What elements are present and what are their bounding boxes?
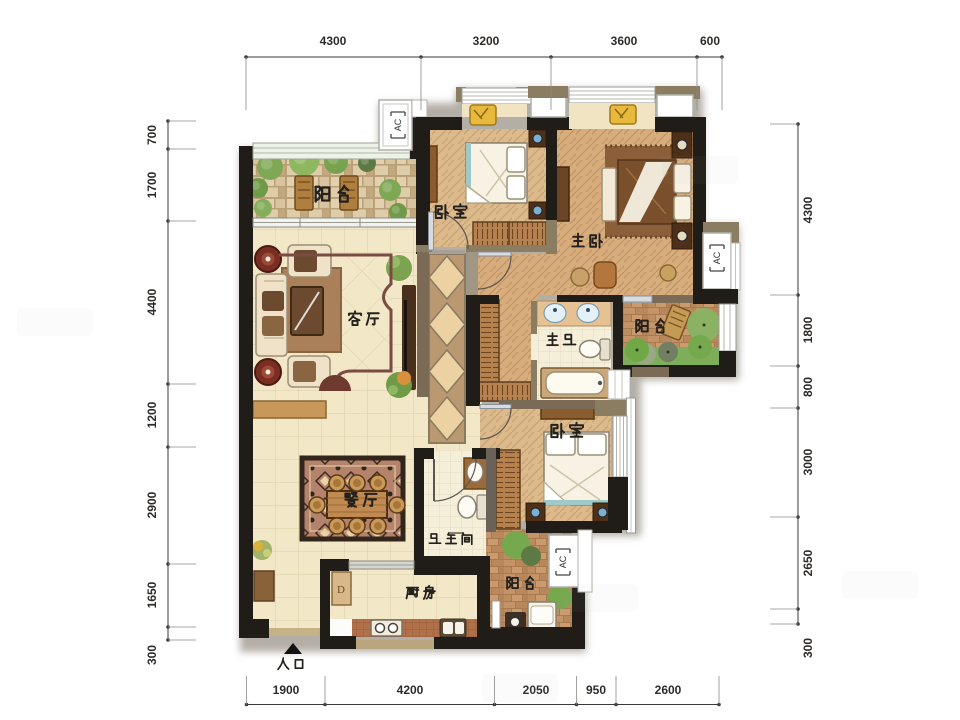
svg-text:1200: 1200 bbox=[145, 401, 159, 428]
svg-text:1900: 1900 bbox=[273, 683, 300, 697]
svg-text:4300: 4300 bbox=[801, 196, 815, 223]
svg-text:800: 800 bbox=[801, 377, 815, 397]
svg-text:300: 300 bbox=[145, 645, 159, 665]
svg-text:4200: 4200 bbox=[397, 683, 424, 697]
svg-text:AC: AC bbox=[712, 251, 722, 264]
svg-text:4400: 4400 bbox=[145, 288, 159, 315]
svg-text:1700: 1700 bbox=[145, 171, 159, 198]
svg-text:2900: 2900 bbox=[145, 491, 159, 518]
svg-text:1800: 1800 bbox=[801, 316, 815, 343]
svg-text:3000: 3000 bbox=[801, 448, 815, 475]
svg-text:600: 600 bbox=[700, 34, 720, 48]
svg-text:3200: 3200 bbox=[473, 34, 500, 48]
svg-text:AC: AC bbox=[393, 118, 403, 131]
svg-text:950: 950 bbox=[586, 683, 606, 697]
svg-text:300: 300 bbox=[801, 638, 815, 658]
svg-text:700: 700 bbox=[145, 125, 159, 145]
svg-text:2600: 2600 bbox=[655, 683, 682, 697]
svg-text:3600: 3600 bbox=[611, 34, 638, 48]
svg-text:1650: 1650 bbox=[145, 581, 159, 608]
svg-text:AC: AC bbox=[558, 555, 568, 568]
svg-text:D: D bbox=[337, 584, 345, 596]
svg-text:4300: 4300 bbox=[320, 34, 347, 48]
svg-text:2650: 2650 bbox=[801, 549, 815, 576]
